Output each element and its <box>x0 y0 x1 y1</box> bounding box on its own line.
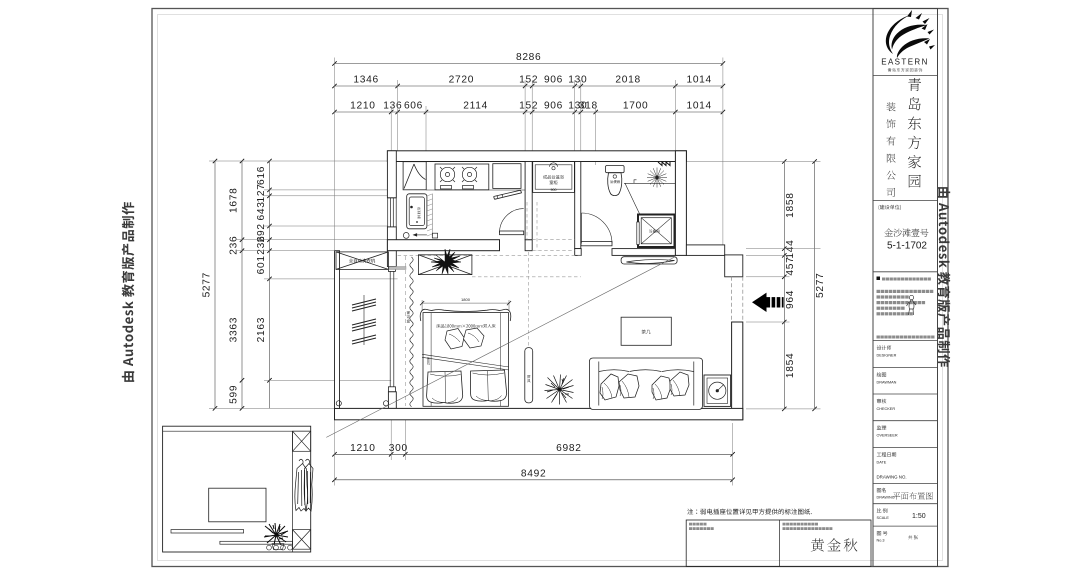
svg-text:152: 152 <box>519 75 538 86</box>
svg-text:DRAWING: DRAWING <box>877 496 895 500</box>
svg-text:8492: 8492 <box>521 468 546 479</box>
svg-text:2114: 2114 <box>463 101 488 112</box>
svg-text:5-1-1702: 5-1-1702 <box>887 241 927 252</box>
svg-text:144: 144 <box>785 239 796 258</box>
svg-text:606: 606 <box>404 101 423 112</box>
svg-text:152: 152 <box>519 101 538 112</box>
svg-text:No.3: No.3 <box>877 539 885 543</box>
svg-text:906: 906 <box>544 75 563 86</box>
svg-text:1210: 1210 <box>350 443 375 454</box>
svg-text:906: 906 <box>544 101 563 112</box>
svg-text:OVERSEER: OVERSEER <box>877 434 898 438</box>
svg-text:136: 136 <box>383 101 402 112</box>
svg-text:1854: 1854 <box>785 353 796 378</box>
svg-text:236: 236 <box>256 236 267 255</box>
svg-text:300: 300 <box>389 443 408 454</box>
svg-text:1:50: 1:50 <box>912 513 926 520</box>
svg-text:1700: 1700 <box>623 101 648 112</box>
svg-text:1014: 1014 <box>686 75 711 86</box>
svg-text:5277: 5277 <box>815 272 826 297</box>
svg-text:1210: 1210 <box>350 101 375 112</box>
svg-text:643: 643 <box>256 201 267 220</box>
svg-text:8286: 8286 <box>516 52 541 63</box>
svg-text:900: 900 <box>551 188 557 192</box>
svg-text:457: 457 <box>785 257 796 276</box>
svg-text:EASTERN: EASTERN <box>881 58 929 67</box>
svg-text:2018: 2018 <box>615 75 640 86</box>
svg-text:1800: 1800 <box>461 297 471 302</box>
svg-text:CHECKER: CHECKER <box>877 407 896 411</box>
svg-text:1014: 1014 <box>686 101 711 112</box>
svg-text:DRAWMAN: DRAWMAN <box>877 381 897 385</box>
svg-text:DRAWING NO.: DRAWING NO. <box>877 475 907 480</box>
svg-text:2000: 2000 <box>426 357 430 365</box>
svg-text:SCALE: SCALE <box>877 516 890 520</box>
svg-text:601: 601 <box>256 255 267 274</box>
svg-text:1678: 1678 <box>229 188 240 213</box>
svg-text:DESIGNER: DESIGNER <box>877 354 897 358</box>
svg-text:5277: 5277 <box>202 272 213 297</box>
svg-text:127: 127 <box>256 183 267 202</box>
svg-text:1346: 1346 <box>353 75 378 86</box>
svg-text:2163: 2163 <box>256 317 267 342</box>
svg-text:6982: 6982 <box>556 443 581 454</box>
svg-text:130: 130 <box>568 75 587 86</box>
svg-text:318: 318 <box>579 101 598 112</box>
svg-text:2720: 2720 <box>449 75 474 86</box>
svg-text:236: 236 <box>229 236 240 255</box>
svg-text:964: 964 <box>785 290 796 309</box>
svg-text:1858: 1858 <box>785 192 796 217</box>
svg-text:3363: 3363 <box>229 317 240 342</box>
svg-text:DATE: DATE <box>877 460 887 464</box>
svg-text:616: 616 <box>256 166 267 185</box>
svg-text:599: 599 <box>229 385 240 404</box>
